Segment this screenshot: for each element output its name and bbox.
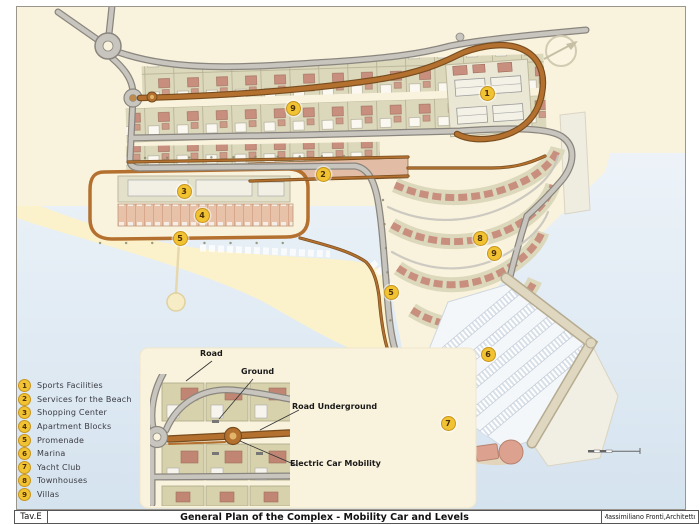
map-marker-9: 9 <box>286 101 301 116</box>
legend-label: Sports Facilities <box>37 381 103 390</box>
legend-label: Townhouses <box>37 476 87 485</box>
map-marker-3: 3 <box>177 184 192 199</box>
legend: 1Sports Facilities2Services for the Beac… <box>18 379 132 501</box>
legend-label: Marina <box>37 449 66 458</box>
legend-label: Villas <box>37 490 59 499</box>
legend-badge: 1 <box>18 379 31 392</box>
legend-badge: 4 <box>18 420 31 433</box>
title-bar: Tav.E General Plan of the Complex - Mobi… <box>14 510 699 524</box>
legend-badge: 9 <box>18 488 31 501</box>
map-marker-8: 8 <box>473 231 488 246</box>
map-marker-7: 7 <box>441 416 456 431</box>
legend-item-4: 4Apartment Blocks <box>18 420 132 434</box>
legend-item-8: 8Townhouses <box>18 474 132 488</box>
map-marker-2: 2 <box>316 167 331 182</box>
north-arrow-compass-icon <box>544 36 578 66</box>
road-junction <box>456 33 464 41</box>
legend-badge: 7 <box>18 461 31 474</box>
legend-label: Services for the Beach <box>37 395 132 404</box>
legend-item-2: 2Services for the Beach <box>18 393 132 407</box>
sheet-number: Tav.E <box>15 511 48 523</box>
legend-item-1: 1Sports Facilities <box>18 379 132 393</box>
legend-item-9: 9Villas <box>18 488 132 502</box>
legend-label: Shopping Center <box>37 408 107 417</box>
legend-label: Yacht Club <box>37 463 81 472</box>
legend-item-7: 7Yacht Club <box>18 461 132 475</box>
map-marker-5: 5 <box>384 285 399 300</box>
drawing-title: General Plan of the Complex - Mobility C… <box>48 511 602 523</box>
legend-label: Apartment Blocks <box>37 422 111 431</box>
legend-item-5: 5Promenade <box>18 433 132 447</box>
legend-badge: 2 <box>18 393 31 406</box>
legend-badge: 3 <box>18 406 31 419</box>
legend-label: Promenade <box>37 436 84 445</box>
legend-item-3: 3Shopping Center <box>18 406 132 420</box>
east-quay-band <box>560 112 590 214</box>
label-road-underground: Road Underground <box>292 402 377 411</box>
mobility-detail-inset <box>140 348 476 508</box>
map-marker-5: 5 <box>173 231 188 246</box>
legend-badge: 6 <box>18 447 31 460</box>
map-marker-6: 6 <box>481 347 496 362</box>
site-plan-page: 1Sports Facilities2Services for the Beac… <box>0 0 700 525</box>
legend-item-6: 6Marina <box>18 447 132 461</box>
map-marker-9: 9 <box>487 246 502 261</box>
map-marker-1: 1 <box>480 86 495 101</box>
architect-name: Massimiliano Fronti,Architetto <box>605 511 695 523</box>
legend-badge: 5 <box>18 434 31 447</box>
label-ground: Ground <box>241 367 274 376</box>
label-electric-car-mobility: Electric Car Mobility <box>290 459 381 468</box>
map-marker-4: 4 <box>195 208 210 223</box>
label-road: Road <box>200 349 223 358</box>
shopping-roofs <box>128 180 284 196</box>
legend-badge: 8 <box>18 474 31 487</box>
